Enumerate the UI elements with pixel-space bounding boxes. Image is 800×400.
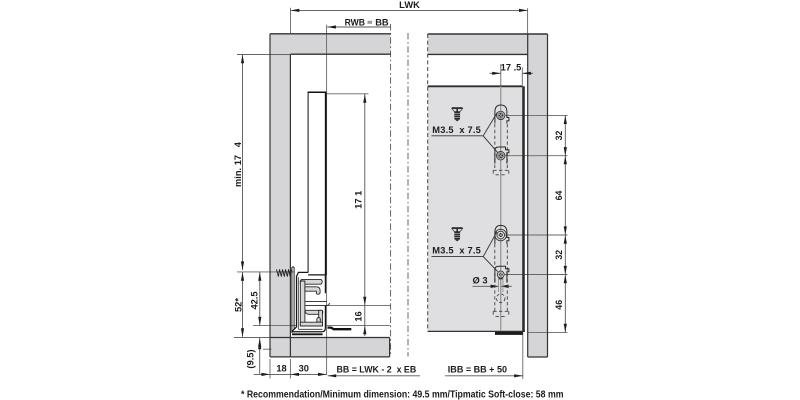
- svg-text:BB: BB: [375, 18, 389, 28]
- svg-text:16: 16: [354, 311, 364, 321]
- svg-text:IBB = BB + 50: IBB = BB + 50: [448, 364, 507, 374]
- svg-text:RWB: RWB: [345, 18, 366, 28]
- svg-text:32: 32: [554, 131, 564, 141]
- svg-text:* Recommendation/Minimum dimen: * Recommendation/Minimum dimension: 49.5…: [241, 389, 564, 400]
- svg-text:M3.5 x 7.5: M3.5 x 7.5: [432, 125, 481, 135]
- svg-text:32: 32: [554, 250, 564, 260]
- svg-text:17 1: 17 1: [354, 191, 364, 209]
- svg-text:BB = LWK - 2 x EB: BB = LWK - 2 x EB: [337, 364, 417, 374]
- svg-text:min. 17 4: min. 17 4: [233, 141, 243, 187]
- svg-text:30: 30: [299, 364, 309, 374]
- svg-text:17 .5: 17 .5: [501, 63, 522, 73]
- svg-text:M3.5 x 7.5: M3.5 x 7.5: [432, 246, 481, 256]
- svg-text:LWK: LWK: [399, 0, 420, 10]
- svg-text:42.5: 42.5: [250, 291, 260, 309]
- svg-text:46: 46: [554, 300, 564, 310]
- svg-text:18: 18: [276, 364, 286, 374]
- svg-text:(9.5): (9.5): [246, 349, 256, 368]
- svg-text:64: 64: [554, 191, 564, 201]
- svg-text:52*: 52*: [233, 298, 243, 312]
- svg-text:Ø 3: Ø 3: [473, 276, 488, 286]
